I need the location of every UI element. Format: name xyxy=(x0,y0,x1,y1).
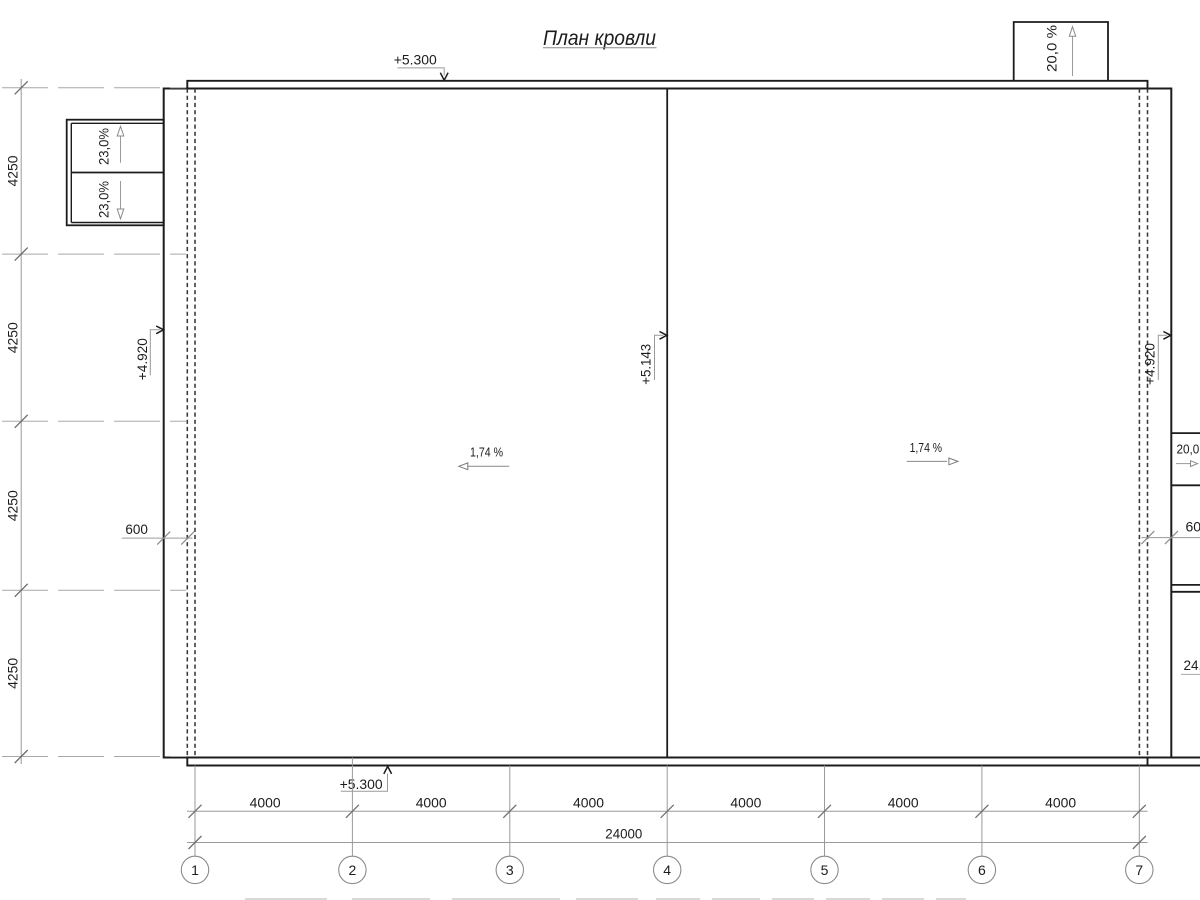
svg-text:+4.920: +4.920 xyxy=(135,338,150,380)
svg-text:+5.143: +5.143 xyxy=(639,344,654,385)
svg-text:4000: 4000 xyxy=(573,795,604,811)
svg-text:600: 600 xyxy=(1186,519,1200,535)
svg-text:4000: 4000 xyxy=(416,795,447,811)
svg-text:20,0 %: 20,0 % xyxy=(1043,25,1059,72)
svg-text:+4.920: +4.920 xyxy=(1142,343,1157,385)
svg-text:+5.300: +5.300 xyxy=(394,52,437,68)
svg-text:24000: 24000 xyxy=(605,826,642,842)
svg-text:1,74 %: 1,74 % xyxy=(910,441,943,455)
svg-text:1,74 %: 1,74 % xyxy=(470,446,503,460)
svg-text:+5.300: +5.300 xyxy=(340,776,383,792)
svg-text:4000: 4000 xyxy=(1045,795,1076,811)
svg-text:24,75: 24,75 xyxy=(1184,658,1200,673)
svg-text:4250: 4250 xyxy=(5,490,21,521)
svg-text:7: 7 xyxy=(1135,862,1143,878)
svg-text:3: 3 xyxy=(506,862,514,878)
svg-text:4250: 4250 xyxy=(5,322,21,353)
svg-text:600: 600 xyxy=(125,521,148,537)
svg-text:2: 2 xyxy=(349,862,357,878)
svg-text:4000: 4000 xyxy=(730,795,761,811)
svg-text:4250: 4250 xyxy=(5,658,21,689)
svg-text:20,0 %: 20,0 % xyxy=(1177,442,1200,457)
svg-text:План кровли: План кровли xyxy=(543,26,656,50)
svg-text:1: 1 xyxy=(191,862,199,878)
svg-text:4250: 4250 xyxy=(5,155,21,186)
svg-text:4000: 4000 xyxy=(250,795,281,811)
svg-text:4: 4 xyxy=(663,862,671,878)
svg-text:5: 5 xyxy=(821,862,829,878)
svg-text:6: 6 xyxy=(978,862,986,878)
svg-text:23,0%: 23,0% xyxy=(97,128,112,165)
svg-text:4000: 4000 xyxy=(888,795,919,811)
svg-text:23,0%: 23,0% xyxy=(97,181,112,218)
